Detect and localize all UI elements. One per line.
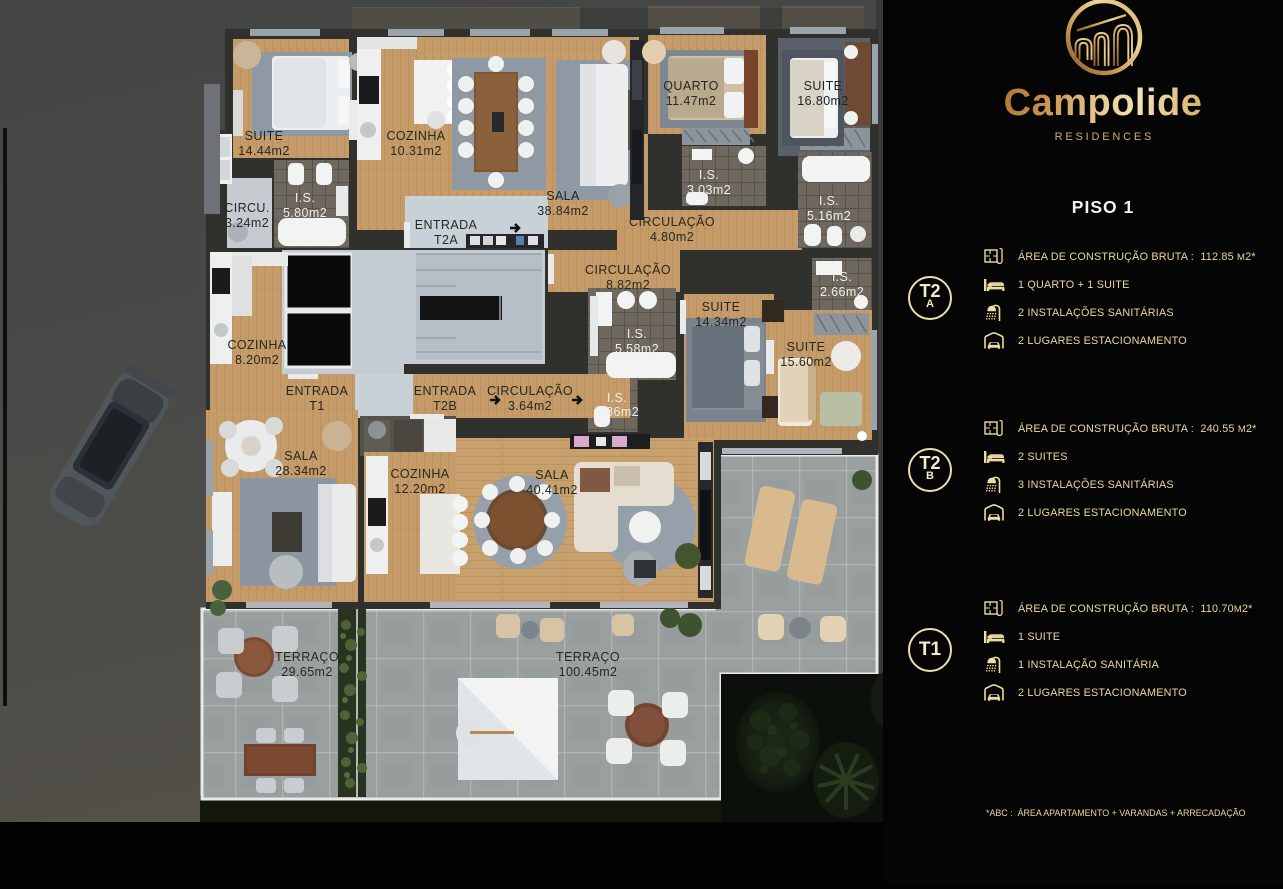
svg-text:11.47m2: 11.47m2 [666,94,717,108]
svg-text:I.S.: I.S. [607,391,627,405]
svg-text:T1: T1 [309,399,324,413]
svg-text:28.34m2: 28.34m2 [275,464,326,478]
svg-text:CIRCULAÇÃO: CIRCULAÇÃO [487,384,573,398]
svg-text:16.80m2: 16.80m2 [797,94,848,108]
svg-text:8.82m2: 8.82m2 [606,278,650,292]
svg-text:SALA: SALA [284,449,318,463]
svg-text:ENTRADA: ENTRADA [414,384,477,398]
svg-text:I.S.: I.S. [699,168,719,182]
svg-text:3.03m2: 3.03m2 [687,183,731,197]
svg-text:14.34m2: 14.34m2 [695,315,746,329]
svg-text:14.44m2: 14.44m2 [238,144,289,158]
svg-text:SALA: SALA [546,189,580,203]
svg-text:10.31m2: 10.31m2 [390,144,441,158]
svg-text:3.64m2: 3.64m2 [508,399,552,413]
svg-text:COZINHA: COZINHA [227,338,286,352]
svg-text:SUITE: SUITE [702,300,741,314]
svg-text:QUARTO: QUARTO [663,79,718,93]
svg-text:40.41m2: 40.41m2 [526,483,577,497]
svg-text:ENTRADA: ENTRADA [286,384,349,398]
svg-text:100.45m2: 100.45m2 [559,665,618,679]
svg-text:38.84m2: 38.84m2 [537,204,588,218]
svg-text:SUITE: SUITE [787,340,826,354]
svg-text:29.65m2: 29.65m2 [281,665,332,679]
svg-text:4.80m2: 4.80m2 [650,230,694,244]
svg-text:I.S.: I.S. [627,327,647,341]
svg-text:T2A: T2A [434,233,458,247]
svg-text:TERRAÇO: TERRAÇO [556,650,620,664]
svg-text:COZINHA: COZINHA [390,467,449,481]
svg-text:15.60m2: 15.60m2 [780,355,831,369]
svg-text:I.S.: I.S. [295,191,315,205]
svg-text:I.S.: I.S. [832,270,852,284]
svg-text:SUITE: SUITE [245,129,284,143]
svg-text:TERRAÇO: TERRAÇO [275,650,339,664]
svg-text:T2B: T2B [433,399,457,413]
svg-text:1.86m2: 1.86m2 [595,405,639,419]
svg-text:5.16m2: 5.16m2 [807,209,851,223]
svg-text:ENTRADA: ENTRADA [415,218,478,232]
svg-text:CIRCU.: CIRCU. [224,201,269,215]
svg-text:8.20m2: 8.20m2 [235,353,279,367]
svg-text:I.S.: I.S. [819,194,839,208]
svg-text:SUITE: SUITE [804,79,843,93]
svg-text:12.20m2: 12.20m2 [394,482,445,496]
svg-text:COZINHA: COZINHA [386,129,445,143]
svg-text:SALA: SALA [535,468,569,482]
svg-text:5.80m2: 5.80m2 [283,206,327,220]
svg-text:2.66m2: 2.66m2 [820,285,864,299]
svg-text:5.58m2: 5.58m2 [615,342,659,356]
svg-text:CIRCULAÇÃO: CIRCULAÇÃO [629,215,715,229]
svg-text:CIRCULAÇÃO: CIRCULAÇÃO [585,263,671,277]
svg-text:3.24m2: 3.24m2 [225,216,269,230]
